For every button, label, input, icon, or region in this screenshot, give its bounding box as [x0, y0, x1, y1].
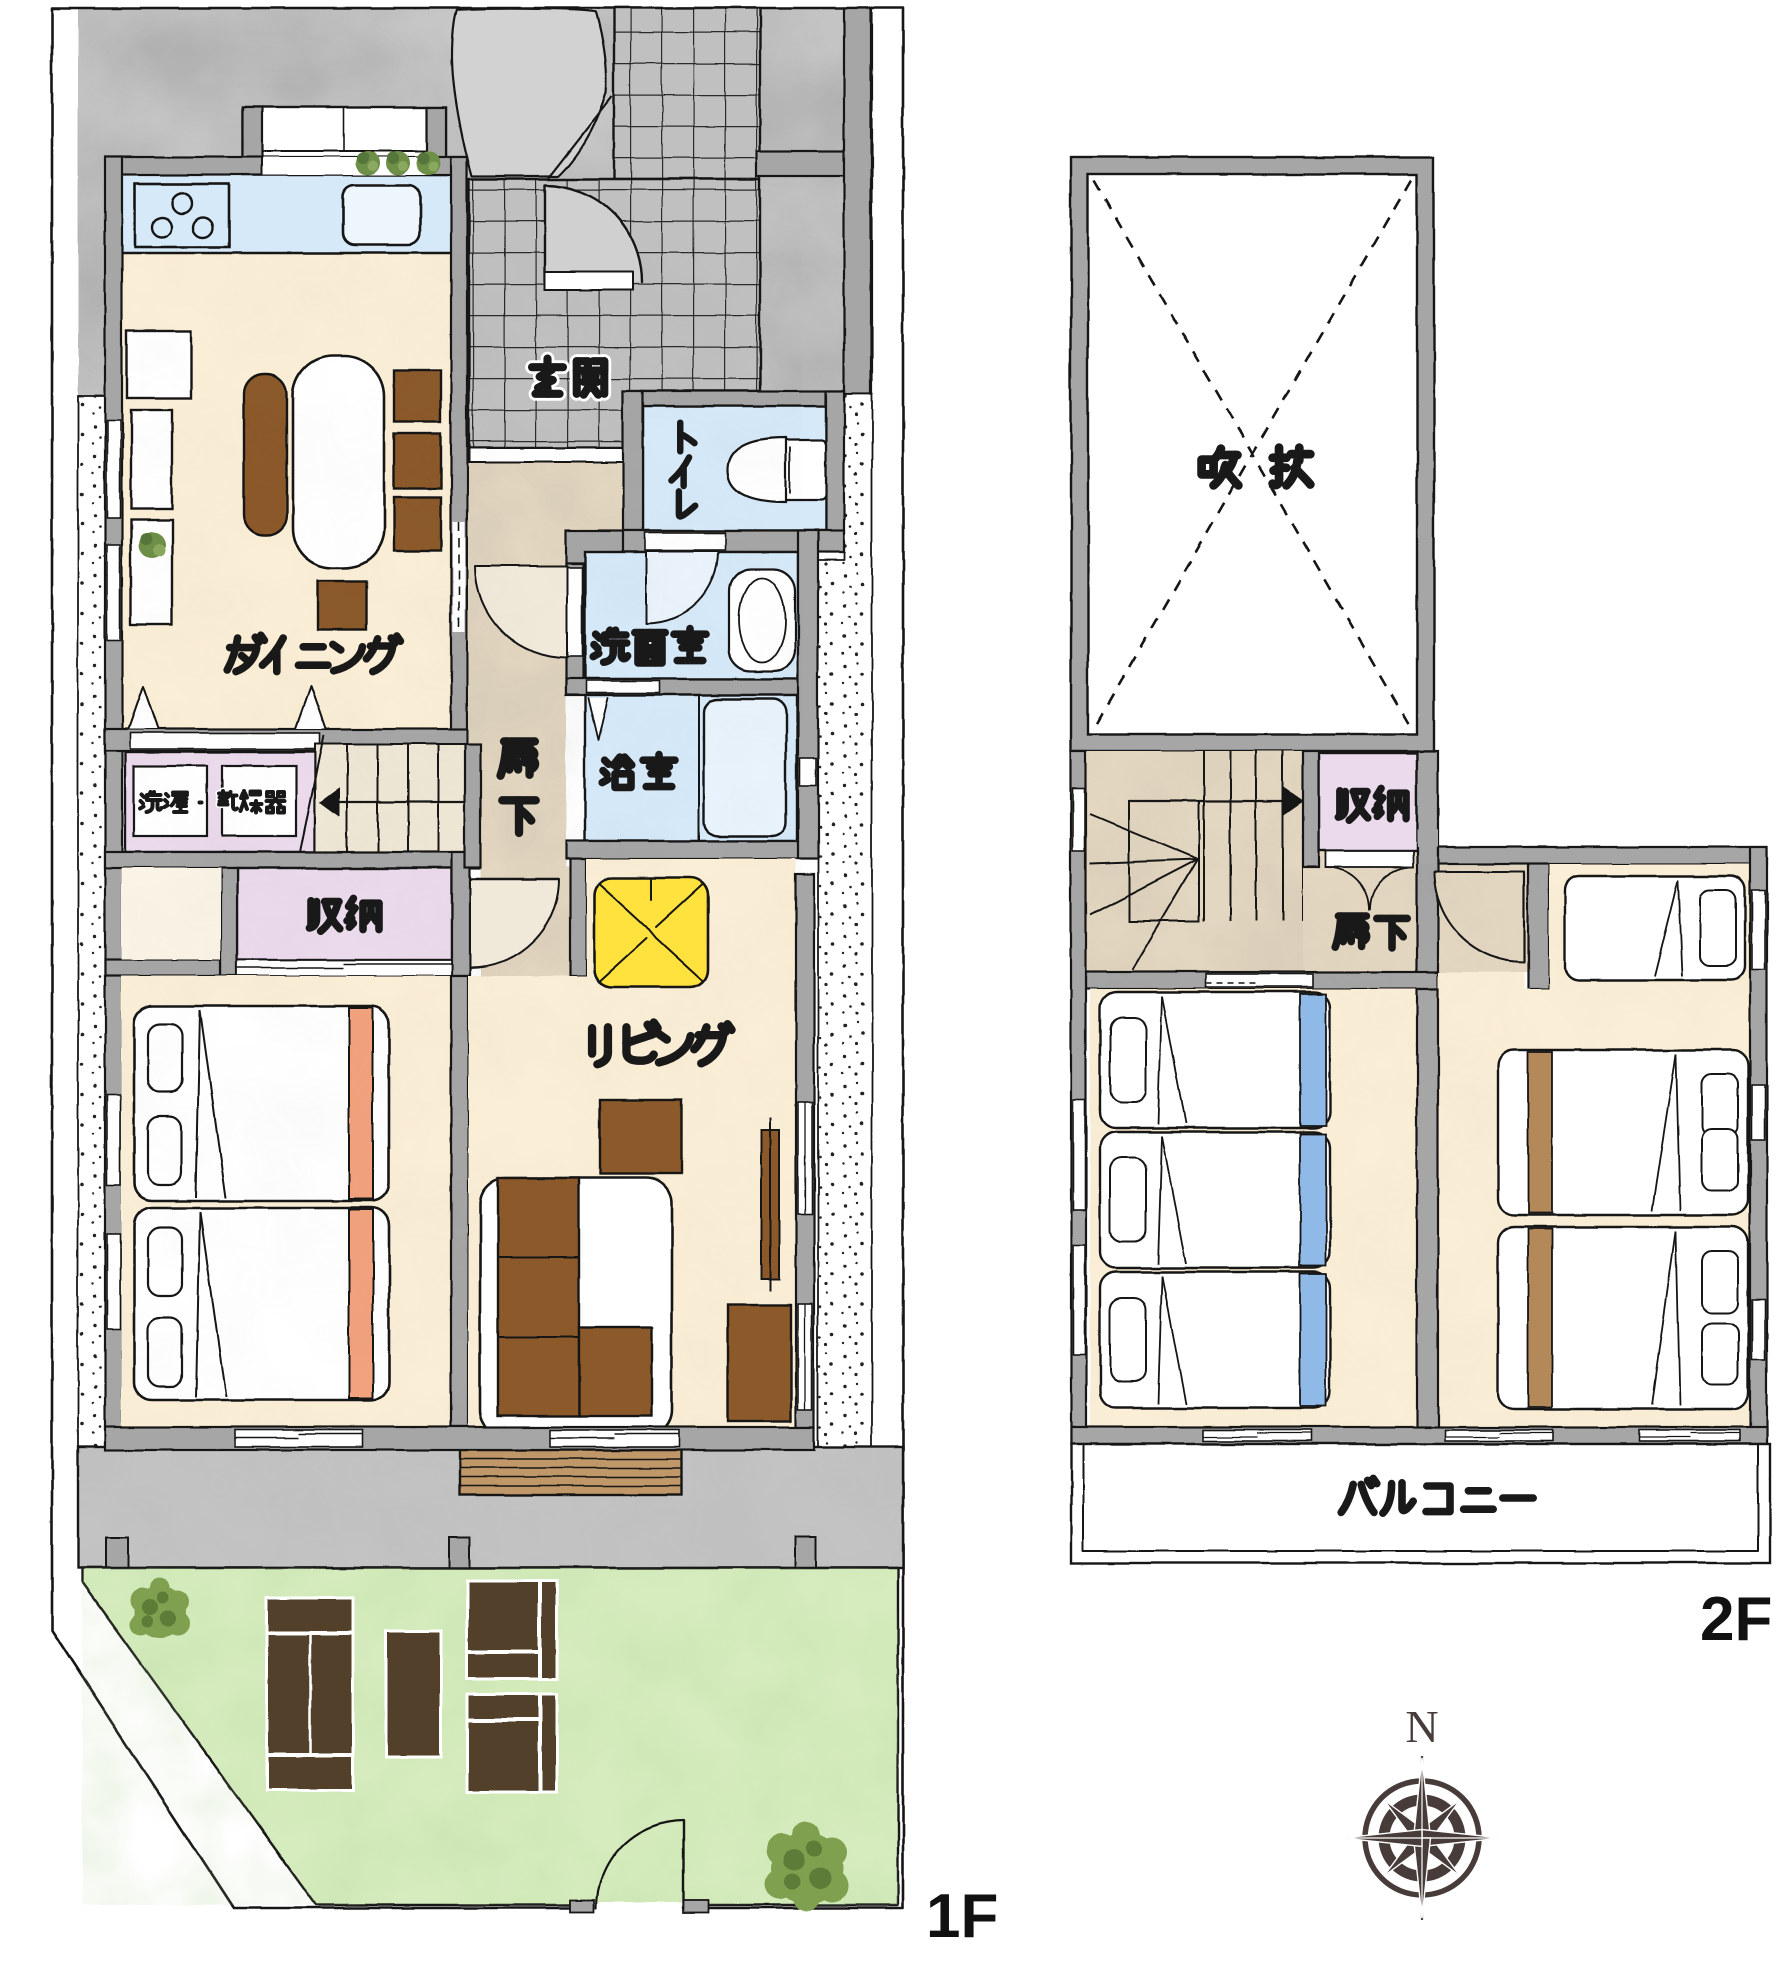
svg-text:N: N — [1405, 1701, 1438, 1752]
svg-text:2F: 2F — [1700, 1585, 1772, 1654]
svg-text:1F: 1F — [926, 1882, 998, 1951]
